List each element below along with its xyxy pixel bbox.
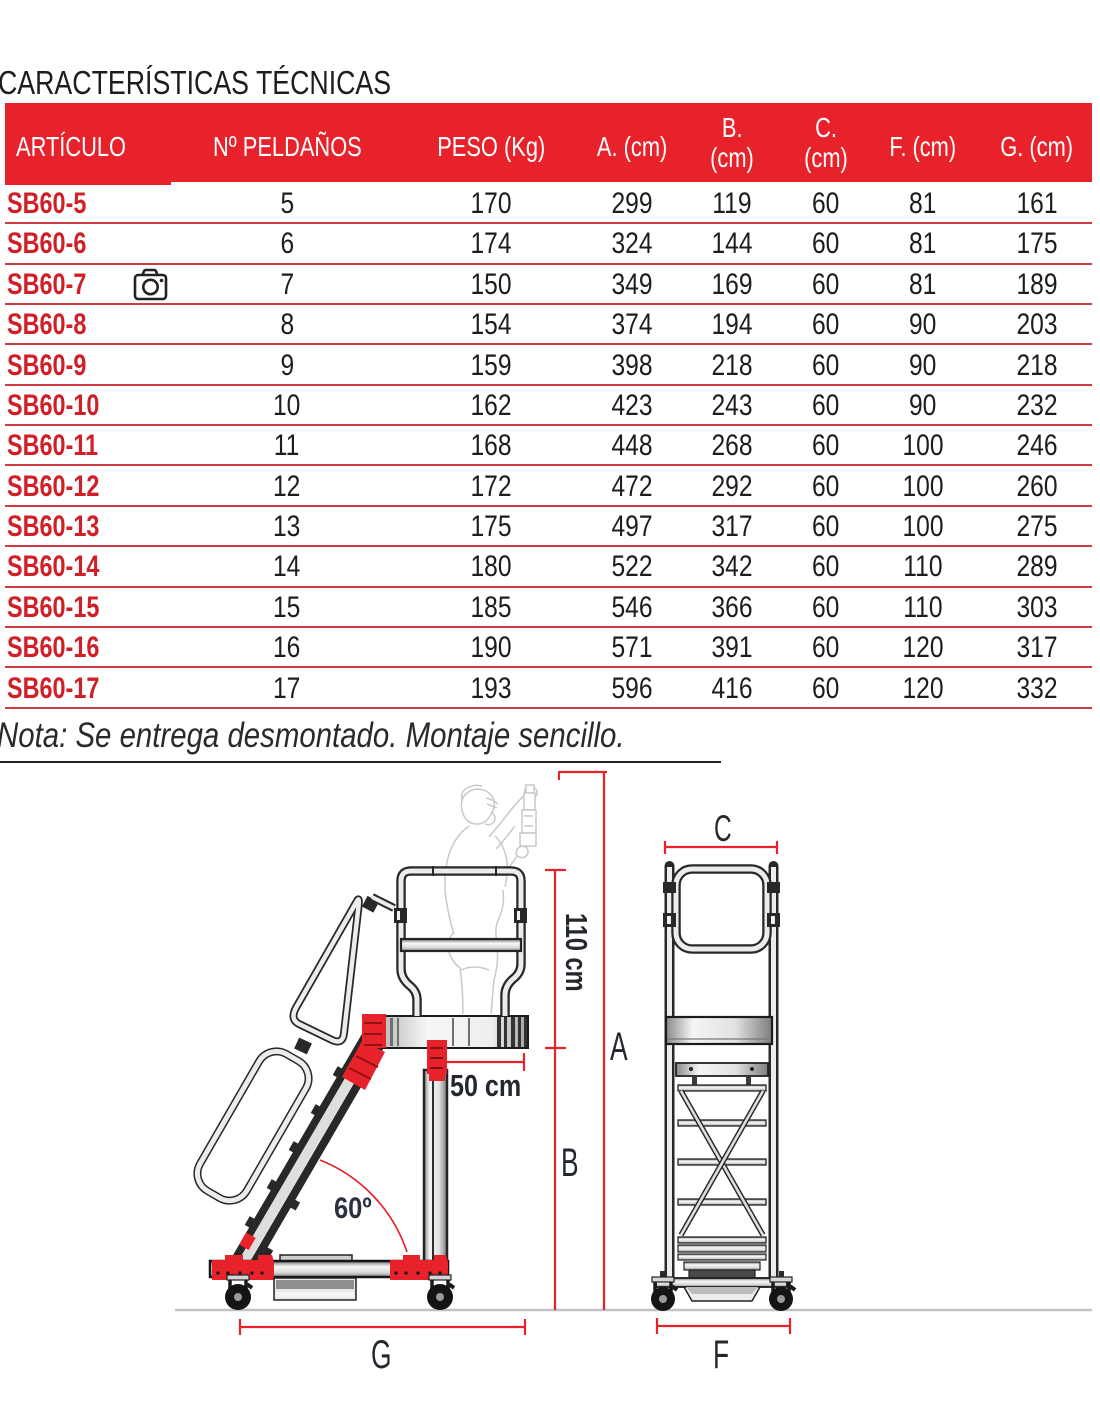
- svg-text:F: F: [713, 1333, 729, 1378]
- svg-text:G: G: [371, 1333, 392, 1378]
- svg-text:B: B: [561, 1141, 579, 1186]
- svg-text:A: A: [610, 1025, 628, 1070]
- svg-text:110 cm: 110 cm: [559, 913, 594, 992]
- svg-text:50 cm: 50 cm: [450, 1067, 521, 1102]
- svg-text:C: C: [714, 808, 732, 849]
- svg-text:60º: 60º: [334, 1191, 372, 1224]
